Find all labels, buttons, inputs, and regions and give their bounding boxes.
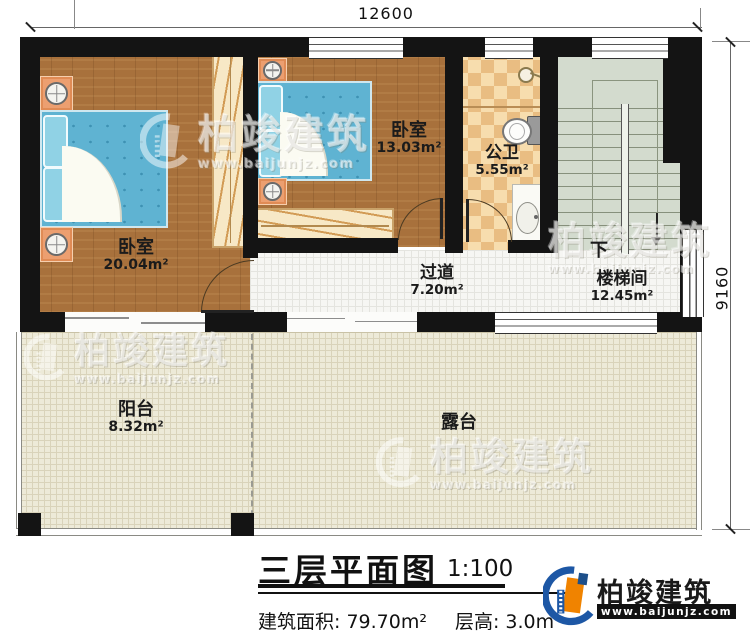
nightstand [258, 178, 287, 205]
stair-railing [621, 104, 629, 254]
top-dimension-ext-left [74, 0, 75, 29]
floor-plan-canvas: 12600 9160 下 [0, 0, 750, 635]
wall-bedroom2-bottom [250, 238, 398, 253]
title-sub-info: 建筑面积: 79.70m²层高: 3.0m [258, 607, 582, 634]
right-dimension-value: 9160 [713, 266, 732, 311]
nightstand [40, 227, 73, 262]
brand-logo-icon [543, 565, 595, 631]
wall-bathroom-stairwell [540, 37, 558, 253]
wall-bedroom1-corridor [243, 312, 258, 332]
wardrobe-bedroom2 [256, 208, 394, 242]
pillar [18, 513, 41, 536]
wall-bedroom-divider [243, 37, 258, 258]
window [309, 37, 403, 59]
opening-line [65, 317, 129, 319]
drawing-scale: 1:100 [447, 556, 513, 582]
title-underline-thin [258, 592, 567, 594]
shower-divider-line [463, 106, 540, 108]
nightstand [40, 76, 73, 111]
balcony-left-railing [16, 332, 22, 530]
pillar [231, 513, 254, 536]
wall-left [20, 37, 40, 332]
floor-height-text: 层高: 3.0m [455, 611, 554, 633]
window [682, 230, 704, 317]
room-label-corridor: 过道 7.20m² [410, 264, 463, 298]
terrace-opening [287, 312, 417, 332]
lamp-icon [45, 233, 68, 256]
room-label-bedroom1: 卧室 20.04m² [103, 238, 168, 274]
door-leaf-bedroom1 [201, 310, 254, 313]
opening-line [141, 322, 205, 324]
opening-line [287, 318, 345, 319]
nightstand [258, 58, 287, 82]
wall-bottom-seg [417, 312, 495, 332]
room-label-balcony: 阳台 8.32m² [108, 400, 163, 436]
building-area-text: 建筑面积: 79.70m² [258, 611, 427, 633]
outdoor-bottom-railing [16, 528, 702, 536]
terrace-right-railing [696, 332, 702, 530]
wall-bottom-seg [20, 312, 65, 332]
stair-down-label: 下 [590, 236, 608, 262]
opening-line [355, 321, 417, 322]
window [495, 312, 657, 334]
stair-direction-arrow [656, 213, 658, 238]
room-label-stairwell: 楼梯间 12.45m² [591, 270, 654, 304]
brand-url: www.baijunjz.com [601, 606, 732, 618]
room-label-bedroom2: 卧室 13.03m² [376, 121, 441, 157]
stair-direction-arrowhead [651, 237, 661, 246]
balcony-terrace-divider [251, 334, 253, 526]
faucet-dot [534, 215, 538, 219]
door-leaf-bathroom [466, 199, 469, 242]
top-dimension-value: 12600 [341, 4, 431, 23]
toilet-icon [502, 118, 532, 145]
lamp-icon [45, 82, 68, 105]
top-dimension-ext-right [700, 8, 701, 29]
room-label-terrace: 露台 [441, 413, 477, 433]
window [592, 37, 668, 59]
lamp-icon [263, 182, 282, 201]
wall-bedroom2-bathroom [445, 37, 463, 253]
top-dimension-line [30, 27, 702, 28]
lamp-icon [263, 61, 282, 80]
room-label-bathroom: 公卫 5.55m² [475, 144, 528, 178]
door-leaf-bedroom2 [440, 198, 443, 239]
window [485, 37, 533, 59]
wardrobe-bedroom1 [212, 48, 247, 248]
title-underline-thick [258, 584, 505, 588]
brand-url-bar: www.baijunjz.com [597, 604, 736, 619]
